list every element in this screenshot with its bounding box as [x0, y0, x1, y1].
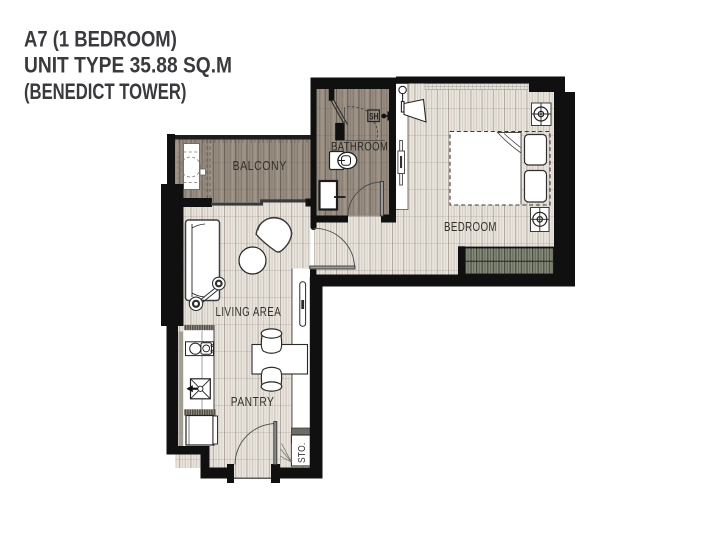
svg-text:BALCONY: BALCONY: [233, 159, 287, 173]
svg-text:STO.: STO.: [296, 443, 307, 463]
svg-text:PANTRY: PANTRY: [231, 396, 275, 409]
svg-text:A7 (1 BEDROOM): A7 (1 BEDROOM): [24, 28, 177, 52]
svg-text:UNIT TYPE 35.88 SQ.M: UNIT TYPE 35.88 SQ.M: [24, 53, 232, 78]
svg-text:BEDROOM: BEDROOM: [444, 221, 497, 235]
svg-text:BATHROOM: BATHROOM: [331, 141, 388, 154]
svg-text:(BENEDICT TOWER): (BENEDICT TOWER): [24, 80, 186, 105]
svg-text:SH: SH: [369, 111, 379, 121]
svg-text:LIVING AREA: LIVING AREA: [216, 306, 282, 319]
